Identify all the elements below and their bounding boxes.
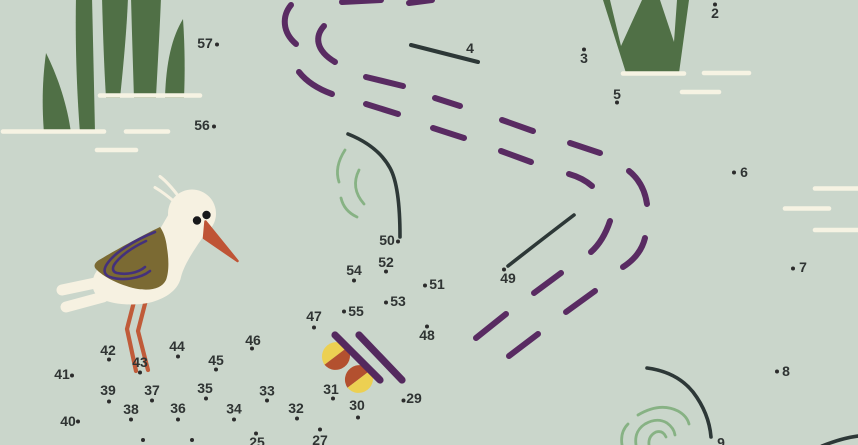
svg-text:57: 57 [197,35,213,51]
svg-text:55: 55 [348,303,364,319]
svg-text:47: 47 [306,308,322,324]
svg-text:37: 37 [144,382,160,398]
svg-text:43: 43 [132,354,148,370]
svg-text:54: 54 [346,262,362,278]
svg-text:30: 30 [349,397,365,413]
svg-text:38: 38 [123,401,139,417]
svg-text:25: 25 [249,434,265,445]
svg-text:50: 50 [379,232,395,248]
svg-text:7: 7 [799,259,807,275]
svg-text:41: 41 [54,366,70,382]
svg-text:44: 44 [169,338,185,354]
svg-text:3: 3 [580,50,588,66]
svg-text:53: 53 [390,293,406,309]
svg-text:52: 52 [378,254,394,270]
svg-text:42: 42 [100,342,116,358]
svg-text:34: 34 [226,401,242,417]
svg-text:35: 35 [197,380,213,396]
svg-text:31: 31 [323,381,339,397]
svg-text:46: 46 [245,332,261,348]
svg-text:36: 36 [170,400,186,416]
svg-text:51: 51 [429,276,445,292]
svg-text:56: 56 [194,117,210,133]
svg-text:39: 39 [100,382,116,398]
svg-text:48: 48 [419,327,435,343]
svg-text:9: 9 [717,435,725,445]
svg-text:49: 49 [500,270,516,286]
svg-text:4: 4 [466,40,474,56]
svg-text:2: 2 [711,5,719,21]
svg-text:45: 45 [208,352,224,368]
svg-text:40: 40 [60,413,76,429]
svg-text:5: 5 [613,86,621,102]
svg-text:33: 33 [259,383,275,399]
svg-text:32: 32 [288,400,304,416]
svg-text:29: 29 [406,390,422,406]
svg-text:8: 8 [782,363,790,379]
svg-text:27: 27 [312,432,328,445]
svg-text:6: 6 [740,164,748,180]
